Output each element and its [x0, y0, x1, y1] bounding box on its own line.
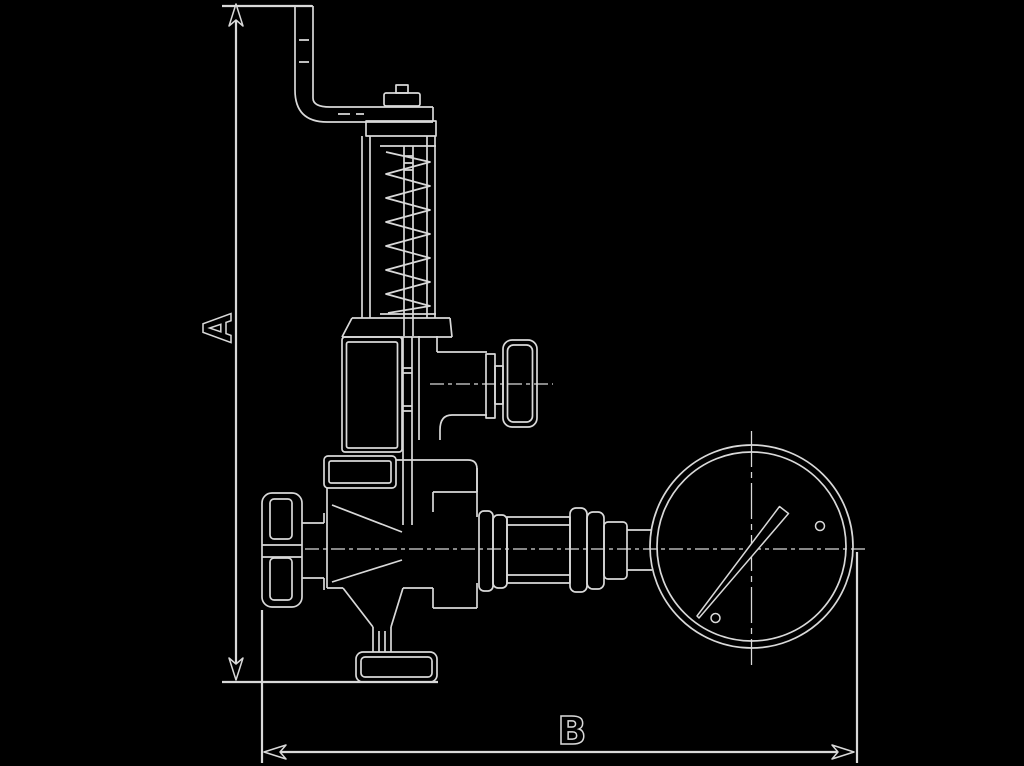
gauge-pipe-run: [305, 508, 868, 592]
branch-bottom: [440, 415, 487, 440]
spring-coil: [386, 152, 430, 313]
technical-drawing-canvas: A B: [0, 0, 1024, 766]
branch-end-flange: [486, 354, 495, 418]
yoke-rod-left: [362, 136, 370, 318]
gauge-dot-left: [711, 614, 720, 623]
union-nut-3: [570, 508, 587, 592]
dim-b-label: B: [558, 709, 587, 753]
handwheel-hub: [262, 545, 302, 557]
gauge-stub-pipe: [627, 530, 652, 570]
outlet-boss-top: [433, 492, 477, 512]
mid-flange: [324, 456, 477, 512]
side-valve: [419, 336, 553, 440]
handwheel-spoke-bottom: [270, 558, 292, 600]
handwheel-neck: [302, 513, 324, 590]
stem-nub: [396, 85, 408, 93]
union-nut-2: [493, 515, 507, 588]
gauge-adapter: [604, 522, 627, 579]
flange-right-shoulder: [396, 460, 477, 492]
inlet-handwheel: [262, 493, 324, 607]
gauge-needle: [697, 507, 789, 619]
outlet-neck: [373, 627, 391, 652]
handwheel-spoke-top: [270, 499, 292, 539]
valve-with-gauge-drawing: A B: [0, 0, 1024, 766]
valve-body: [327, 468, 477, 608]
spindle-guide: [403, 337, 412, 525]
top-cap-plate: [366, 121, 436, 136]
pipe-section: [507, 517, 570, 583]
dim-a-label: A: [196, 313, 240, 343]
union-nut-4: [587, 512, 604, 589]
pressure-gauge: [650, 431, 853, 665]
spindle-ticks: [403, 368, 412, 411]
lever-thread-ticks: [299, 40, 309, 62]
bonnet-chamber-outer: [342, 337, 402, 452]
union-nut-1: [479, 511, 493, 591]
bonnet-shoulder: [342, 318, 452, 337]
knob-stem: [495, 366, 503, 404]
test-lever: [295, 6, 433, 122]
bonnet-chamber-inner: [347, 342, 398, 448]
outlet-taper: [343, 588, 403, 627]
body-venturi-lines: [332, 505, 402, 582]
gauge-boss: [433, 583, 477, 608]
stem-cap: [384, 93, 420, 106]
outlet-flange: [343, 588, 437, 682]
bonnet: [342, 318, 452, 525]
gauge-dot-right: [816, 522, 825, 531]
handwheel-rim: [262, 493, 302, 607]
